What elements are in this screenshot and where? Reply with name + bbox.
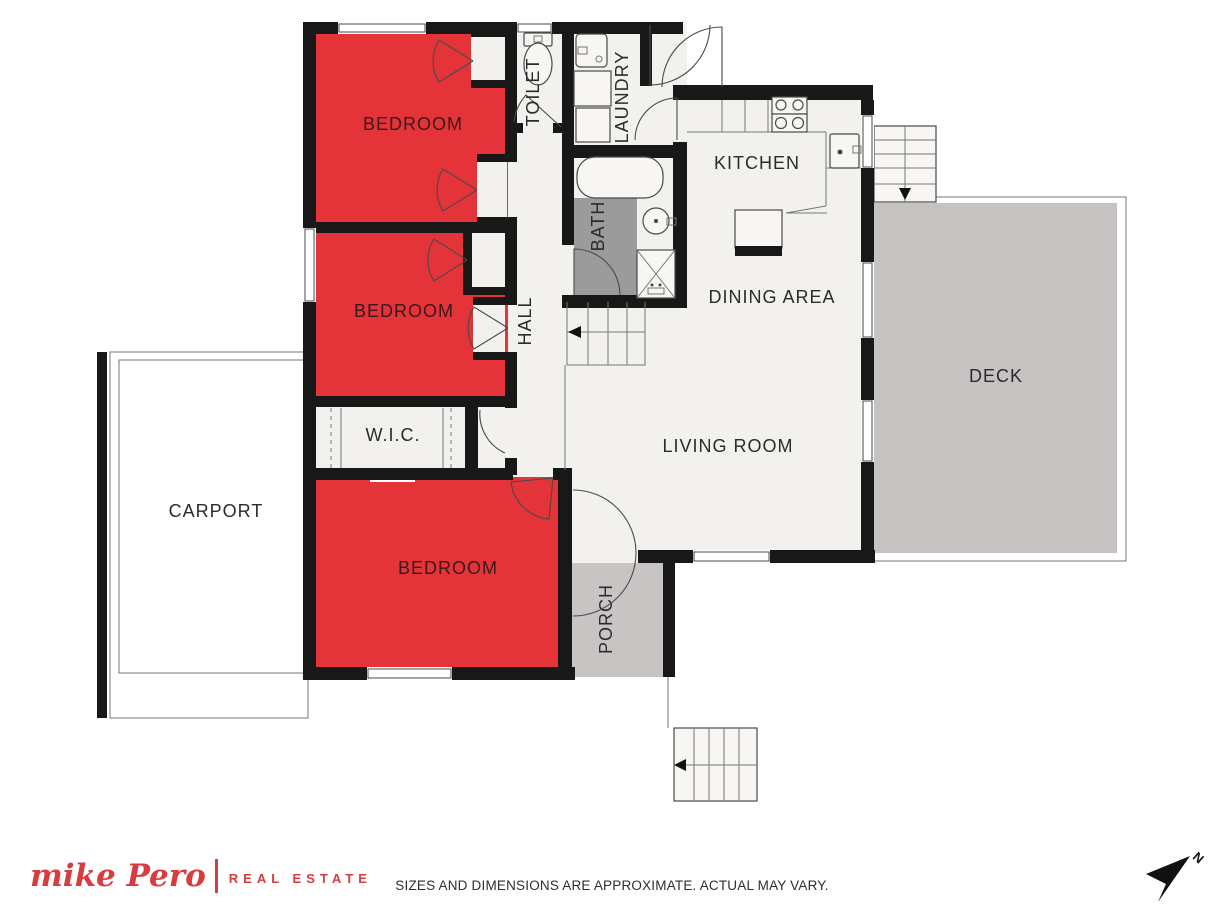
- window-living-east: [861, 400, 874, 462]
- shower: [637, 250, 675, 298]
- stove: [772, 97, 807, 132]
- brand-suffix-text: REAL ESTATE: [229, 867, 372, 886]
- bath-label: BATH: [588, 201, 608, 252]
- carport-outer-outline: [110, 352, 308, 718]
- dining-area-label: DINING AREA: [708, 287, 835, 307]
- bedroom-2-label: BEDROOM: [354, 301, 454, 321]
- living-room-label: LIVING ROOM: [662, 436, 793, 456]
- carport-area: CARPORT: [97, 352, 308, 718]
- kitchen-island: [735, 210, 782, 256]
- laundry-label: LAUNDRY: [612, 51, 632, 144]
- hall-label: HALL: [515, 296, 535, 345]
- brand-script-text: mike Pero: [30, 861, 206, 892]
- north-compass: N: [1138, 844, 1214, 910]
- porch-surface: [572, 563, 663, 677]
- disclaimer-text: SIZES AND DIMENSIONS ARE APPROXIMATE. AC…: [395, 878, 828, 893]
- deck-stairs: [874, 126, 936, 202]
- laundry-tub: [576, 34, 607, 67]
- brand-divider: [215, 859, 218, 893]
- carport-west-wall: [97, 352, 107, 718]
- porch-label: PORCH: [596, 584, 616, 654]
- bedroom-3-label: BEDROOM: [398, 558, 498, 578]
- bedroom-1-label: BEDROOM: [363, 114, 463, 134]
- porch-area: PORCH: [572, 563, 663, 677]
- toilet-label: TOILET: [523, 58, 543, 127]
- exterior-stairs: [668, 677, 757, 801]
- kitchen-sink: [830, 134, 861, 168]
- brand-logo: mike Pero REAL ESTATE: [30, 854, 372, 898]
- wic-label: W.I.C.: [366, 425, 421, 445]
- window-bedroom2-west: [303, 228, 316, 302]
- north-arrow-icon: [1146, 856, 1190, 902]
- dryer: [576, 108, 610, 142]
- window-dining-east: [861, 262, 874, 338]
- window-bedroom1-north: [338, 22, 426, 34]
- kitchen-label: KITCHEN: [714, 153, 800, 173]
- window-toilet-north: [517, 22, 552, 34]
- carport-label: CARPORT: [169, 501, 264, 521]
- window-living-south: [693, 550, 770, 563]
- window-bedroom3-south: [367, 667, 452, 680]
- deck-area: DECK: [866, 126, 1126, 561]
- bathtub: [577, 157, 663, 198]
- washing-machine: [574, 71, 611, 106]
- floor-plan-drawing: CARPORT DECK PORCH BEDROOM B: [0, 0, 1224, 918]
- floor-plan-page: CARPORT DECK PORCH BEDROOM B: [0, 0, 1224, 918]
- window-kitchen-east: [861, 115, 874, 168]
- north-label: N: [1190, 849, 1207, 866]
- deck-label: DECK: [969, 366, 1023, 386]
